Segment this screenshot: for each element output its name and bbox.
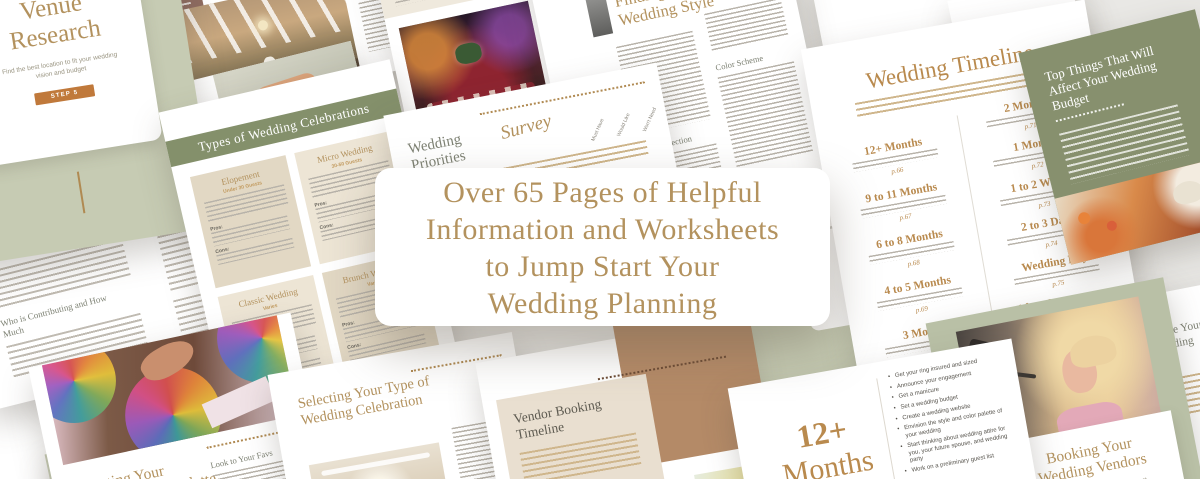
- headline-banner: Over 65 Pages of Helpful Information and…: [375, 168, 830, 326]
- divider-line: [77, 172, 85, 214]
- headline-line: Information and Worksheets: [375, 211, 830, 248]
- survey-script-word: Survey: [498, 110, 554, 145]
- venue-research-card: Venue Research Find the best location to…: [0, 0, 163, 167]
- months12-checklist: Get your ring insured and sized Announce…: [888, 354, 1023, 479]
- booking-vendors-title: Booking Your Wedding Vendors: [1024, 430, 1158, 479]
- vendor-title: Vendor Booking Timeline: [512, 392, 626, 443]
- headline-line: Wedding Planning: [375, 285, 830, 322]
- type-celebration-title: Selecting Your Type of Wedding Celebrati…: [297, 372, 441, 430]
- timeline-item: 9 to 11 Monthsp.67: [841, 177, 965, 231]
- text-placeholder: [718, 61, 813, 167]
- survey-column-header: Must Have: [590, 118, 605, 142]
- step-button: STEP 5: [34, 84, 95, 105]
- text-placeholder: [389, 0, 481, 6]
- promo-collage: Venue Research Find the best location to…: [0, 0, 1200, 479]
- venue-research-title: Venue Research: [0, 0, 117, 59]
- ballroom-chandelier-photo: [309, 442, 456, 479]
- celebration-box-elopement: Elopement Under 30 Guests Pros: Cons:: [190, 155, 311, 288]
- survey-column-header: Won't Need: [642, 107, 658, 133]
- vendor-title-box: Vendor Booking Timeline: [496, 374, 668, 479]
- timeline-item: 12+ Monthsp.66: [833, 131, 957, 185]
- headline-line: to Jump Start Your: [375, 248, 830, 285]
- headline-line: Over 65 Pages of Helpful: [375, 174, 830, 211]
- survey-column-header: Would Like: [616, 112, 632, 137]
- photo-sliver: [584, 0, 613, 37]
- top-budget-title: Top Things That Will Affect Your Wedding…: [1043, 38, 1180, 113]
- timeline-item: 6 to 8 Monthsp.68: [849, 223, 973, 277]
